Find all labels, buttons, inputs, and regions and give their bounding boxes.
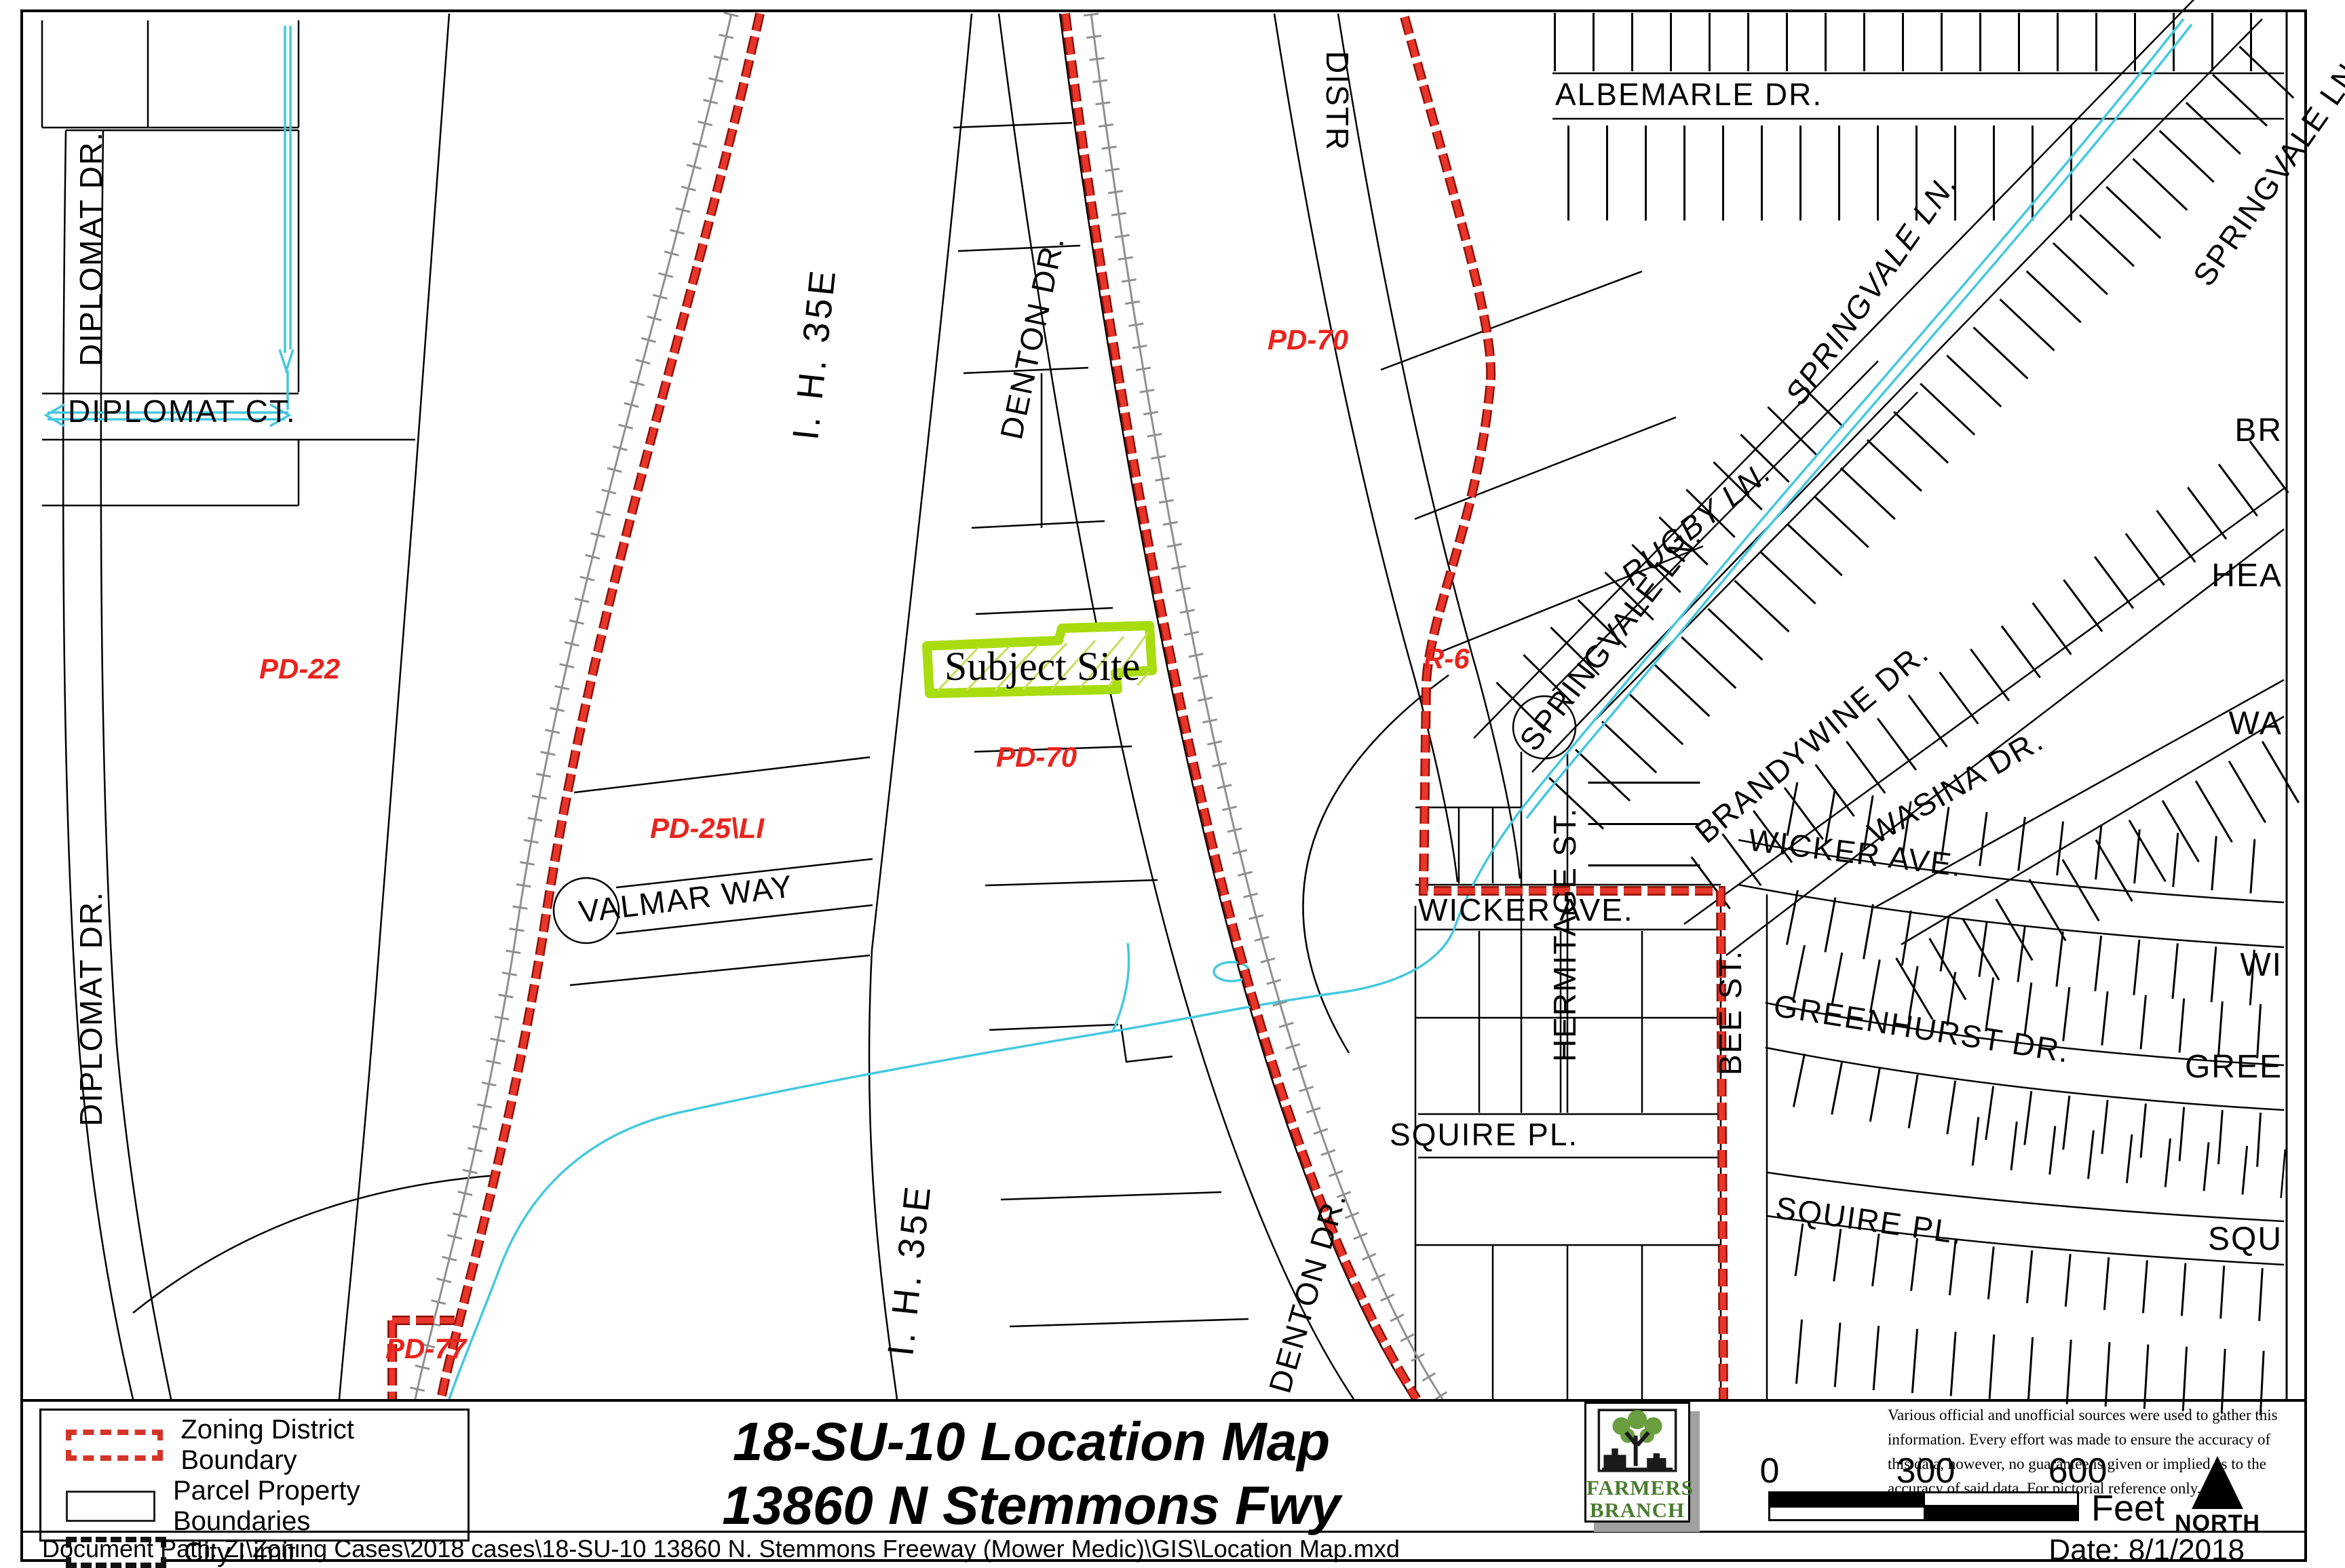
title-block: 18-SU-10 Location Map 13860 N Stemmons F… bbox=[529, 1410, 1533, 1537]
legend: Zoning District Boundary Parcel Property… bbox=[39, 1409, 470, 1542]
legend-item-label: Parcel Property Boundaries bbox=[173, 1476, 468, 1537]
scale-bar-segment bbox=[1770, 1493, 1924, 1506]
legend-item-label: Zoning District Boundary bbox=[180, 1415, 468, 1476]
legend-item-zoning-district-boundary: Zoning District Boundary bbox=[41, 1415, 468, 1476]
map-title-line2: 13860 N Stemmons Fwy bbox=[529, 1474, 1533, 1537]
map-date: Date: 8/1/2018 bbox=[1968, 1533, 2245, 1567]
north-arrow-icon bbox=[2192, 1456, 2243, 1509]
zoning-boundary-swatch bbox=[66, 1430, 163, 1461]
scale-bar-segment bbox=[1924, 1493, 2077, 1506]
legend-item-parcel-boundaries: Parcel Property Boundaries bbox=[41, 1476, 468, 1537]
scale-tick-0: 0 bbox=[1729, 1451, 1810, 1491]
tree-city-logo-icon bbox=[1597, 1408, 1677, 1473]
scale-tick-600: 600 bbox=[2037, 1451, 2118, 1491]
farmers-branch-logo: FARMERS BRANCH bbox=[1584, 1402, 1690, 1523]
page-border bbox=[20, 9, 2307, 1562]
logo-text-line2: BRANCH bbox=[1586, 1499, 1688, 1521]
map-title-line1: 18-SU-10 Location Map bbox=[529, 1410, 1533, 1474]
scale-bar-segment bbox=[1924, 1506, 2077, 1519]
document-path: Document Path: Z:\Zoning Cases\2018 case… bbox=[42, 1535, 1400, 1563]
parcel-boundary-swatch bbox=[66, 1491, 155, 1522]
scale-bar bbox=[1768, 1491, 2079, 1521]
logo-text-line1: FARMERS bbox=[1586, 1476, 1688, 1499]
scale-tick-300: 300 bbox=[1885, 1451, 1966, 1491]
scale-unit-label: Feet bbox=[2091, 1487, 2165, 1529]
map-bottom-frame bbox=[20, 1399, 2304, 1402]
scale-bar-segment bbox=[1770, 1506, 1924, 1519]
